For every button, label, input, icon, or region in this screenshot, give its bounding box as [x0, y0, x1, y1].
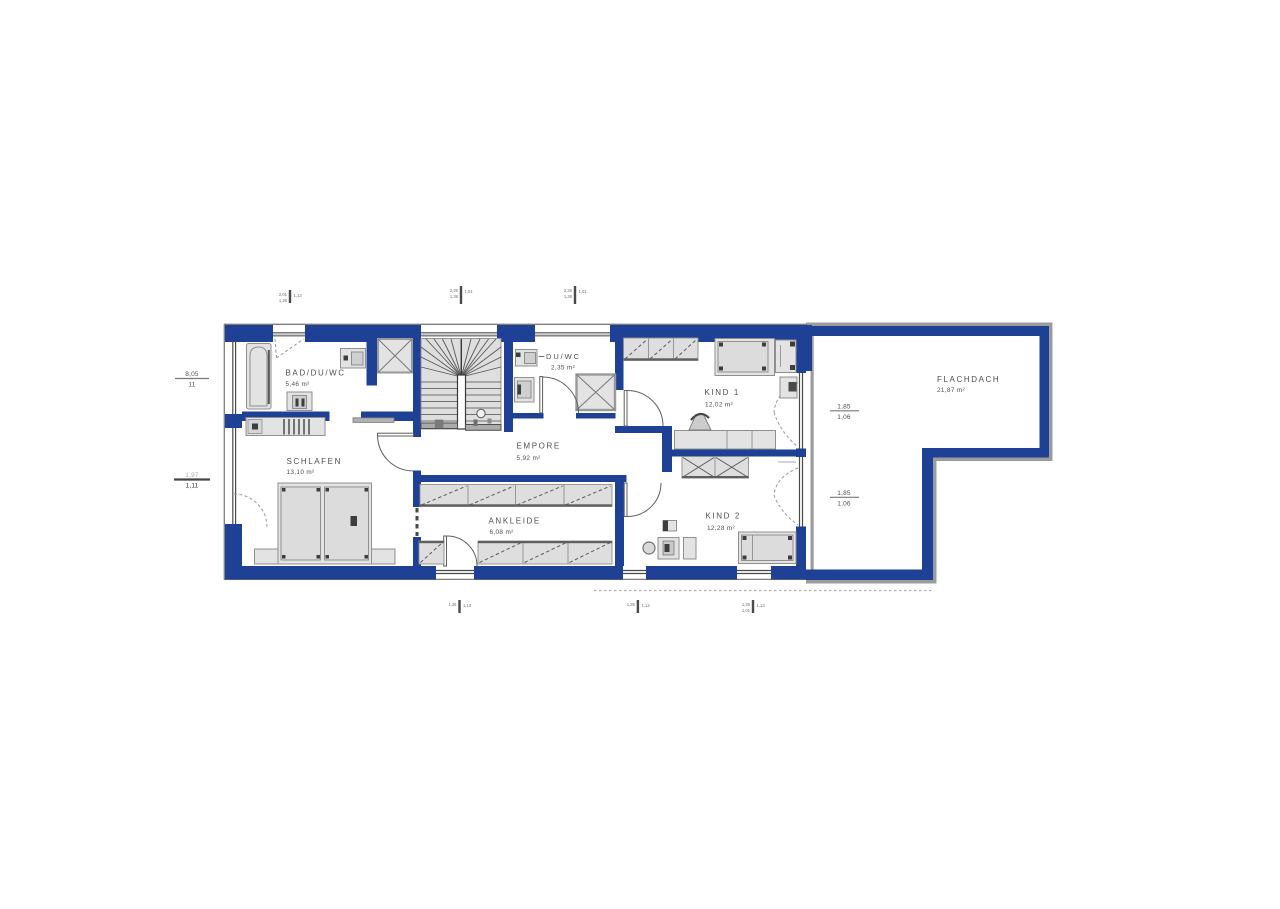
svg-text:13,10 m²: 13,10 m²: [287, 469, 315, 476]
svg-text:BAD/DU/WC: BAD/DU/WC: [286, 369, 346, 378]
svg-text:SCHLAFEN: SCHLAFEN: [287, 457, 342, 466]
svg-text:12,28 m²: 12,28 m²: [707, 525, 735, 532]
svg-text:1,13: 1,13: [463, 603, 472, 608]
svg-text:DU/WC: DU/WC: [546, 352, 581, 361]
svg-text:ANKLEIDE: ANKLEIDE: [489, 517, 541, 526]
svg-text:1,13: 1,13: [641, 603, 650, 608]
svg-text:1,97: 1,97: [185, 472, 199, 479]
svg-text:1,85: 1,85: [837, 403, 851, 410]
svg-text:2,01: 2,01: [279, 292, 288, 297]
svg-text:6,08 m²: 6,08 m²: [490, 529, 514, 536]
svg-text:2,26: 2,26: [564, 288, 573, 293]
svg-text:11: 11: [188, 382, 195, 389]
svg-text:1,26: 1,26: [448, 602, 457, 607]
svg-text:2,26: 2,26: [450, 288, 459, 293]
svg-text:1,38: 1,38: [450, 294, 459, 299]
svg-text:1,01: 1,01: [579, 289, 588, 294]
svg-text:1,26: 1,26: [627, 602, 636, 607]
svg-text:1,01: 1,01: [742, 608, 751, 613]
svg-text:KIND 2: KIND 2: [706, 512, 741, 521]
svg-text:2,35 m²: 2,35 m²: [551, 365, 575, 372]
svg-text:1,13: 1,13: [757, 603, 766, 608]
svg-text:KIND 1: KIND 1: [705, 388, 740, 397]
svg-text:1,06: 1,06: [837, 414, 851, 421]
svg-text:1,38: 1,38: [564, 294, 573, 299]
svg-text:21,87 m²: 21,87 m²: [937, 387, 965, 394]
svg-text:FLACHDACH: FLACHDACH: [937, 375, 1000, 384]
svg-text:1,01: 1,01: [465, 289, 474, 294]
svg-text:1,06: 1,06: [837, 500, 851, 507]
svg-text:EMPORE: EMPORE: [517, 442, 561, 451]
svg-text:1,26: 1,26: [742, 602, 751, 607]
svg-text:1,85: 1,85: [837, 490, 851, 497]
svg-text:1,13: 1,13: [294, 293, 303, 298]
svg-text:12,02 m²: 12,02 m²: [705, 402, 733, 409]
svg-text:8,05: 8,05: [185, 371, 199, 378]
svg-text:5,92 m²: 5,92 m²: [517, 455, 541, 462]
svg-text:1,26: 1,26: [279, 298, 288, 303]
svg-text:1,11: 1,11: [186, 483, 199, 490]
svg-text:5,46 m²: 5,46 m²: [286, 381, 310, 388]
